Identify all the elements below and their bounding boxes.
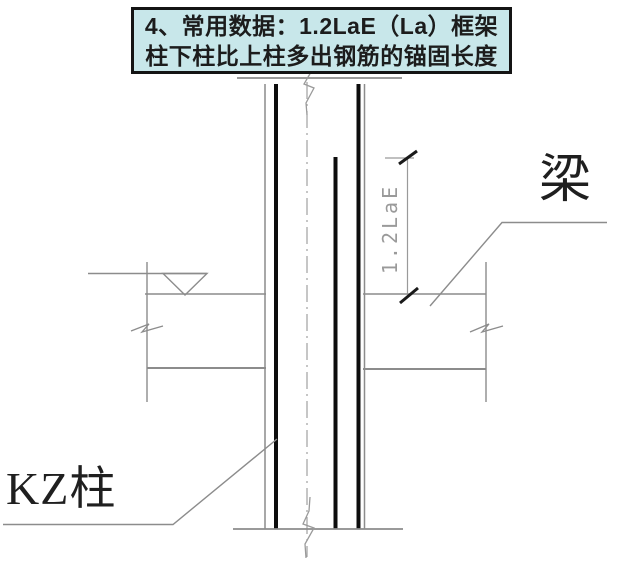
title-box: 4、常用数据：1.2LaE（La）框架 柱下柱比上柱多出钢筋的锚固长度 — [131, 7, 512, 74]
dimension-label: 1.2LaE — [377, 164, 403, 294]
page: 4、常用数据：1.2LaE（La）框架 柱下柱比上柱多出钢筋的锚固长度 梁 KZ… — [0, 0, 637, 576]
level-marker-triangle-icon — [163, 274, 207, 296]
column-label: KZ柱 — [6, 464, 116, 515]
beam-label: 梁 — [539, 155, 591, 207]
title-line-2: 柱下柱比上柱多出钢筋的锚固长度 — [145, 41, 498, 71]
bottom-break-zigzag-icon — [303, 497, 314, 558]
title-line-1: 4、常用数据：1.2LaE（La）框架 — [145, 11, 498, 41]
